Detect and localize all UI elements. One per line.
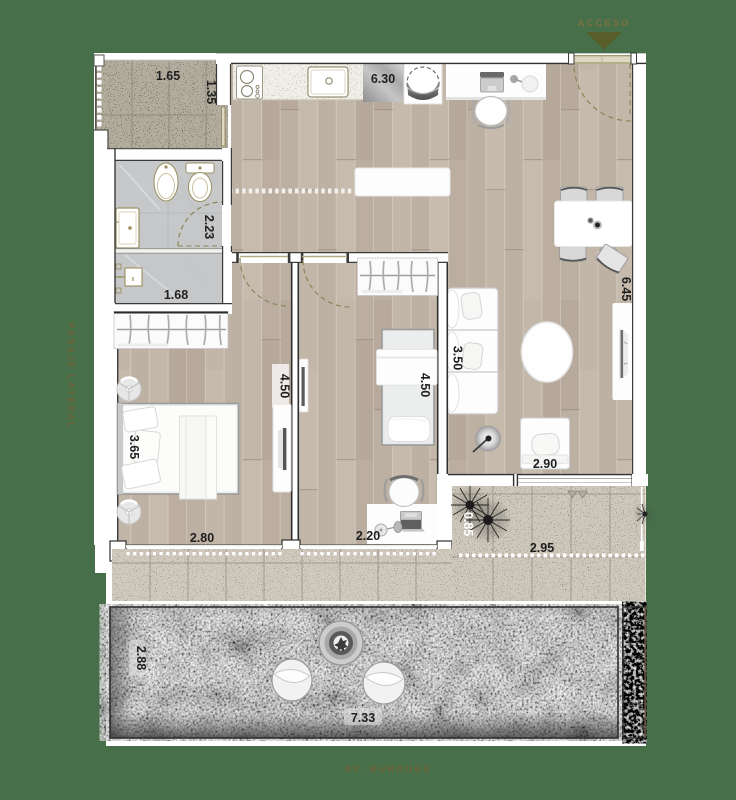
svg-text:3.50: 3.50	[451, 346, 465, 370]
svg-text:4.50: 4.50	[418, 373, 432, 397]
svg-text:2.90: 2.90	[533, 457, 557, 471]
svg-text:1.35: 1.35	[204, 80, 218, 104]
svg-text:2.80: 2.80	[190, 531, 214, 545]
svg-text:7.33: 7.33	[351, 711, 375, 725]
svg-text:1.65: 1.65	[156, 69, 180, 83]
svg-text:6.30: 6.30	[371, 72, 395, 86]
svg-text:4.50: 4.50	[278, 374, 292, 398]
svg-text:AV. BURGUES: AV. BURGUES	[345, 764, 431, 775]
svg-text:2.20: 2.20	[356, 529, 380, 543]
svg-text:0.85: 0.85	[461, 512, 475, 536]
svg-text:2.95: 2.95	[530, 541, 554, 555]
svg-text:ACCESO: ACCESO	[578, 18, 631, 29]
svg-text:6.45: 6.45	[619, 277, 633, 301]
svg-text:3.65: 3.65	[127, 435, 141, 459]
svg-text:PASAJE LATERAL: PASAJE LATERAL	[66, 322, 76, 429]
svg-text:2.88: 2.88	[134, 646, 148, 670]
svg-text:2.23: 2.23	[202, 215, 216, 239]
svg-text:1.68: 1.68	[164, 288, 188, 302]
